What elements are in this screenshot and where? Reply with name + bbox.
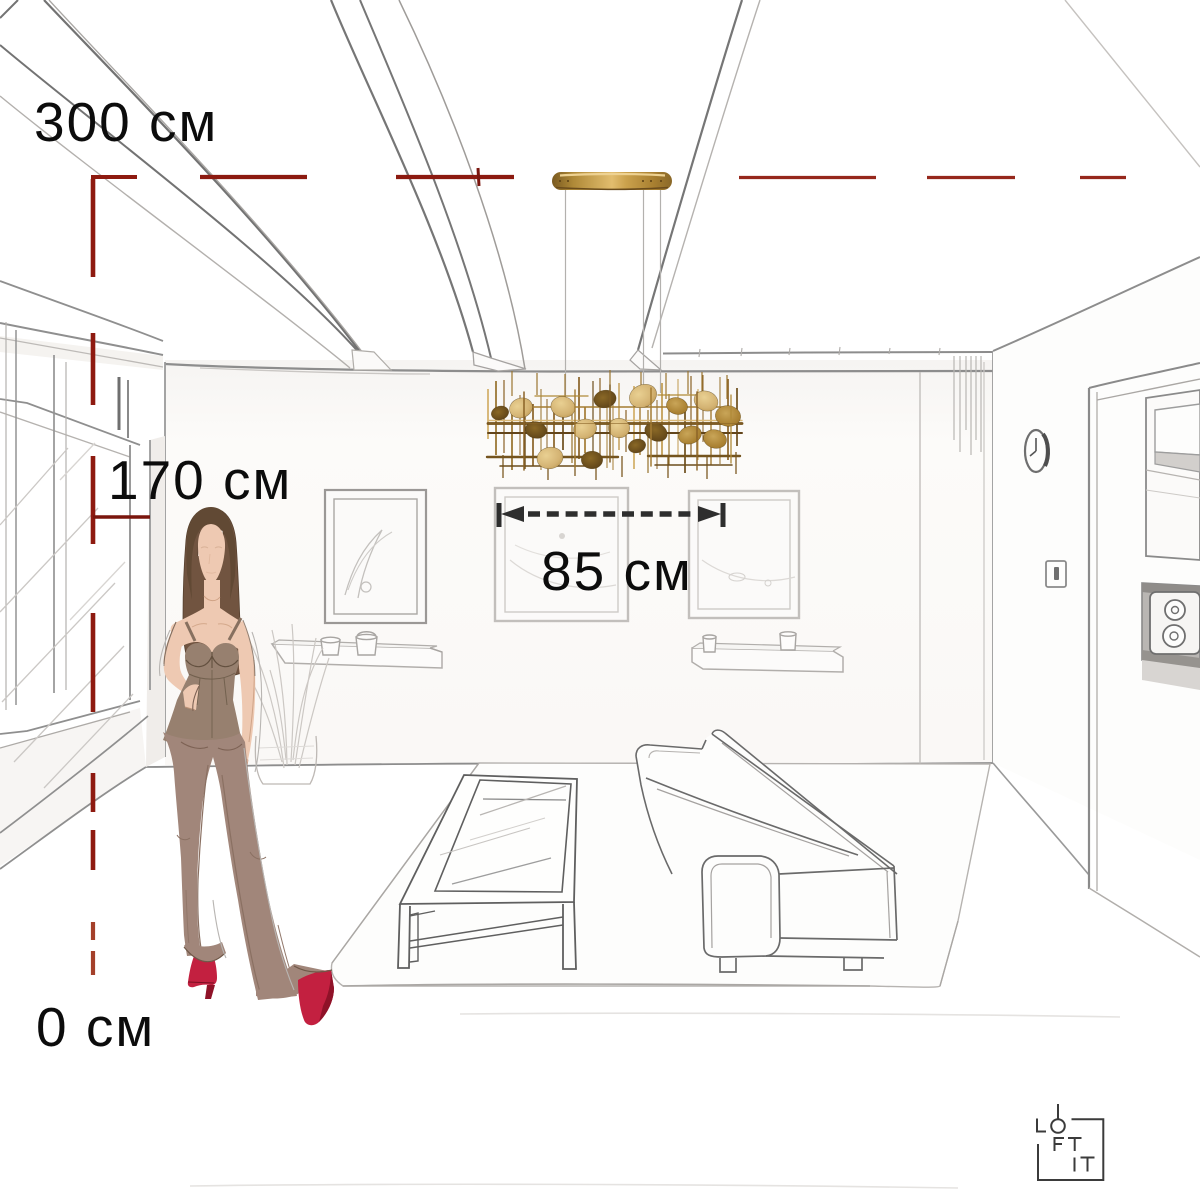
svg-text:300 см: 300 см	[34, 91, 218, 153]
svg-text:0 см: 0 см	[36, 996, 155, 1058]
svg-text:85 см: 85 см	[541, 540, 693, 602]
svg-text:170 см: 170 см	[108, 449, 292, 511]
